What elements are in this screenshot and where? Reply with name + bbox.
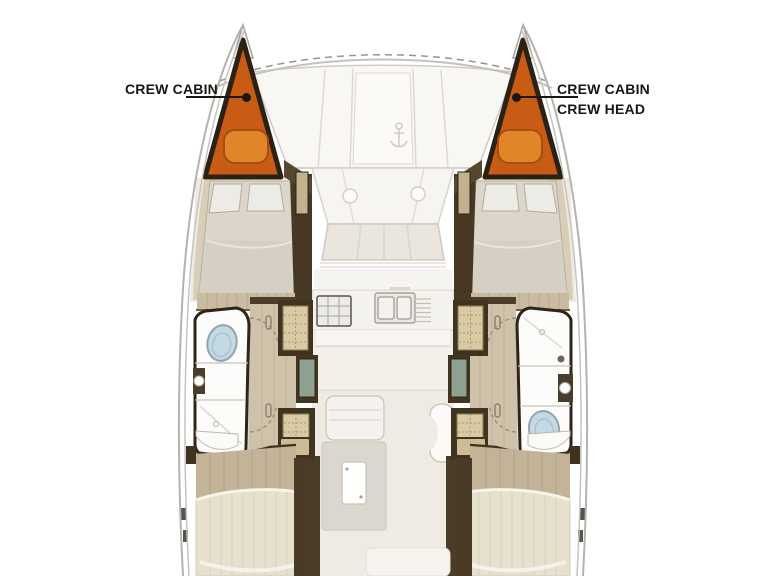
port-crew-berth [224, 130, 268, 163]
aft-step [366, 548, 450, 576]
salon-front-lounge [312, 168, 454, 224]
starboard-labels: CREW CABIN CREW HEAD [557, 79, 650, 119]
port-leader-line [186, 96, 244, 98]
fitting-dot [558, 356, 565, 363]
sink-basin [378, 297, 394, 319]
sb-aft-wall [456, 458, 472, 576]
sb-aft-bed [468, 490, 570, 576]
galley-vent [390, 287, 410, 290]
pillow [247, 184, 284, 211]
catamaran-floorplan: CREW CABIN CREW CABIN CREW HEAD [0, 0, 768, 576]
cleat-icon [580, 508, 585, 520]
floorplan-drawing [0, 0, 768, 576]
ceiling-light-icon [411, 187, 425, 201]
stove-icon [317, 296, 351, 326]
port-aft-wall [294, 458, 310, 576]
sink-basin [397, 297, 411, 319]
port-shower-panel [299, 359, 315, 397]
table-fitting [359, 495, 362, 498]
sb-locker [458, 172, 470, 214]
salon [306, 168, 460, 576]
settee-table-edge [320, 263, 446, 267]
starboard-leader-dot [512, 93, 521, 102]
galley-front [316, 330, 450, 346]
port-aft-bed [196, 490, 298, 576]
salon-sofa [326, 396, 384, 440]
port-locker [296, 172, 308, 214]
pillow [482, 184, 519, 211]
port-leader-dot [242, 93, 251, 102]
forward-settee [322, 224, 444, 260]
curved-seat-cutout [416, 415, 438, 451]
pillow [209, 184, 242, 213]
sb-aft-post [570, 446, 580, 464]
starboard-crew-head-label: CREW HEAD [557, 99, 650, 119]
port-aft-post [186, 446, 196, 464]
salon-counter-band [314, 269, 452, 289]
sb-shower-panel [451, 359, 467, 397]
starboard-leader-line [521, 96, 578, 98]
washbasin-bowl [560, 383, 571, 394]
table-fitting [345, 467, 348, 470]
sb-crew-berth [498, 130, 542, 163]
cleat-icon [181, 508, 186, 520]
foredeck-hatch-panel [353, 73, 413, 164]
salon-floor-light-band [312, 348, 454, 390]
ceiling-light-icon [343, 189, 357, 203]
pillow [524, 184, 557, 213]
washbasin-bowl [194, 376, 204, 386]
